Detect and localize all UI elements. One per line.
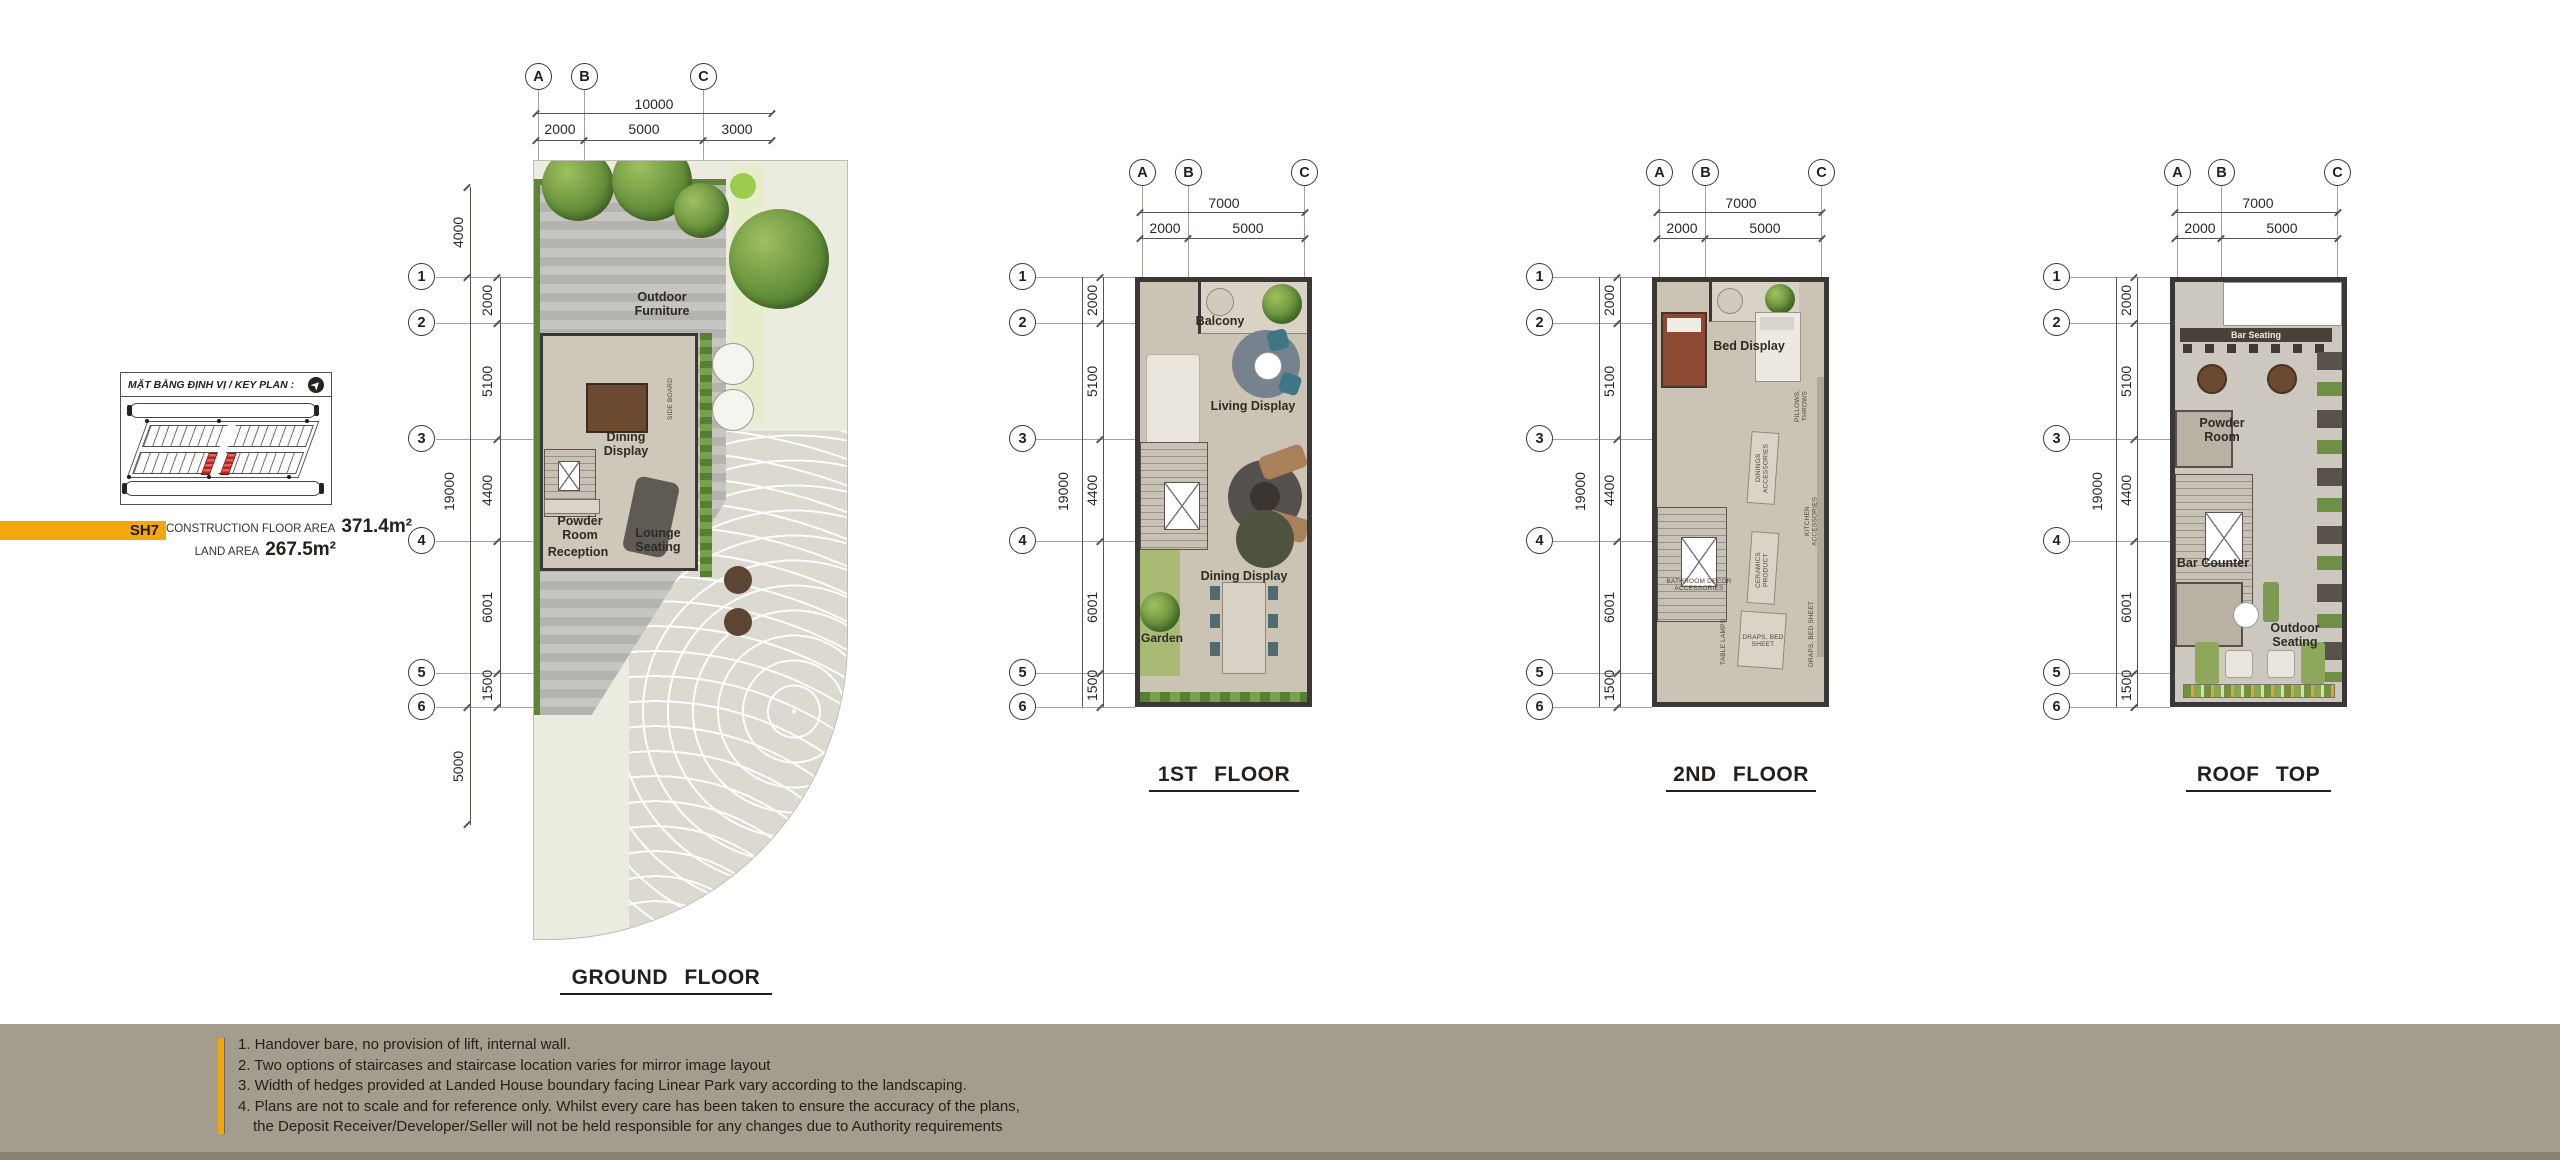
dim-seg: 5000 [615,122,673,136]
grid-bubble-A: A [525,63,552,90]
planter-box [2195,642,2219,684]
dim-total: 7000 [1713,196,1769,210]
grid-line [436,707,533,708]
dim-line [536,140,773,141]
bar-stools-row [2183,344,2329,353]
grid-bubble-3: 3 [408,425,435,452]
dim-line [1599,277,1600,707]
site-corner-dot [305,419,309,423]
grid-line [1553,439,1652,440]
room-label-powder-room: Powder Room [2187,417,2257,445]
first-floor-plan: Balcony Living Display Dining Display Ga… [1135,277,1312,707]
pillow-icon [1667,318,1701,332]
grid-line [584,90,585,162]
compass-icon [308,377,324,393]
dim-total: 19000 [441,450,457,534]
dim-line [2175,212,2339,213]
grid-bubble-4: 4 [408,527,435,554]
chair-row-icon [1268,586,1278,670]
grid-bubble-B: B [2208,159,2235,186]
land-area-label: LAND AREA [195,546,260,558]
dim-total: 10000 [626,97,682,111]
dim-line [1657,238,1823,239]
hedge-strip [700,333,712,577]
grid-bubble-5: 5 [408,659,435,686]
construction-area-value: 371.4m² [341,516,412,537]
dim-tick [768,110,775,117]
round-chair-icon [1717,288,1743,314]
grid-bubble-B: B [1175,159,1202,186]
round-dining-table-icon [1236,510,1294,568]
grid-line [2070,439,2170,440]
footer-bottom-strip [0,1152,2560,1160]
construction-area-line: CONSTRUCTION FLOOR AREA371.4m² [166,516,336,538]
ground-floor-title: GROUND FLOOR [560,966,772,995]
key-plan-title: MẶT BẰNG ĐỊNH VỊ / KEY PLAN : [128,379,308,391]
construction-area-label: CONSTRUCTION FLOOR AREA [166,523,335,535]
dim-seg: 2000 [1084,278,1100,322]
grid-bubble-4: 4 [1009,527,1036,554]
x-table-icon [2267,364,2297,394]
dining-table-icon [1222,582,1266,674]
tree-icon [674,183,729,238]
dim-total: 19000 [1055,450,1071,534]
cafe-table-icon [724,566,752,594]
round-table-icon [1250,482,1280,512]
footer-accent-bar [218,1038,224,1134]
site-corner-dot [127,475,131,479]
grid-bubble-3: 3 [1526,425,1553,452]
label-ceramics-product: CERAMICS PRODUCT [1758,536,1767,604]
dim-seg: 4400 [479,461,495,519]
grid-bubble-2: 2 [1526,309,1553,336]
footer-note-3: 3. Width of hedges provided at Landed Ho… [238,1076,1020,1097]
grid-bubble-1: 1 [408,263,435,290]
dim-line [1140,238,1306,239]
chair-row-icon [1210,586,1220,670]
grid-bubble-4: 4 [1526,527,1553,554]
dim-total: 7000 [2230,196,2286,210]
bar-seating-counter: Bar Seating [2180,328,2332,342]
room-label-sideboard: SIDE BOARD [666,376,675,422]
dim-line [2116,277,2117,707]
road-endcap [122,483,127,494]
dim-seg: 5100 [1601,352,1617,410]
room-label-dining-display: Dining Display [1200,570,1288,584]
room-label-outdoor-furniture: Outdoor Furniture [610,291,714,319]
key-plan-road-bottom [125,481,321,496]
dim-seg: 2000 [2118,278,2134,322]
label-kitchen-accessories: KITCHEN ACCESSORIES [1807,482,1816,560]
grid-bubble-C: C [690,63,717,90]
dim-seg: 2000 [1601,278,1617,322]
flower-planter-strip [2183,684,2335,698]
dim-seg: 5000 [1218,221,1278,235]
dim-total: 19000 [1572,450,1588,534]
footer-note-1: 1. Handover bare, no provision of lift, … [238,1035,1020,1056]
grid-bubble-2: 2 [1009,309,1036,336]
room-label-bed-display: Bed Display [1709,340,1789,354]
floor-plan-sheet: MẶT BẰNG ĐỊNH VỊ / KEY PLAN : [0,0,2560,1160]
site-corner-dot [207,475,211,479]
grid-line [1036,707,1135,708]
room-label-bar-seating: Bar Seating [2231,330,2281,340]
second-floor-title: 2ND FLOOR [1666,763,1816,792]
room-label-balcony: Balcony [1180,315,1260,329]
dim-seg: 3000 [708,122,766,136]
grid-bubble-6: 6 [1009,693,1036,720]
cube-seat-icon [2267,650,2295,678]
grid-bubble-6: 6 [2043,693,2070,720]
reception-desk-icon [544,499,600,514]
footer-note-4-continued: the Deposit Receiver/Developer/Seller wi… [238,1117,1020,1138]
site-corner-dot [145,419,149,423]
tree-icon [1765,284,1795,314]
umbrella-seat-icon [712,389,754,431]
key-plan-map [121,397,331,502]
land-area-line: LAND AREA267.5m² [166,539,336,561]
grid-line [1304,186,1305,277]
grid-bubble-B: B [571,63,598,90]
room-label-reception: Reception [538,546,618,560]
dim-line [1657,212,1823,213]
dim-line [1082,277,1083,707]
x-table-icon [2197,364,2227,394]
grid-bubble-1: 1 [1009,263,1036,290]
dim-seg: 4400 [1601,461,1617,519]
grid-line [2070,323,2170,324]
roof-opening [2223,282,2342,326]
dim-seg: 5000 [2252,221,2312,235]
dim-seg: 4400 [1084,461,1100,519]
roof-top-plan: Bar Seating Powder Room Bar Counter Outd… [2170,277,2347,707]
cafe-table-icon [724,608,752,636]
dim-seg: 5100 [2118,352,2134,410]
grid-line [1036,323,1135,324]
cube-seat-icon [2225,650,2253,678]
dim-seg: 4400 [2118,461,2134,519]
room-label-outdoor-seating: Outdoor Seating [2251,622,2339,650]
unit-areas: CONSTRUCTION FLOOR AREA371.4m² LAND AREA… [166,516,336,561]
dim-seg: 2000 [1141,221,1189,235]
grid-line [703,90,704,162]
footer-note-2: 2. Two options of staircases and stairca… [238,1056,1020,1077]
grid-bubble-C: C [1808,159,1835,186]
grid-line [1036,541,1135,542]
grid-line [1036,439,1135,440]
dim-line [1620,277,1621,707]
sofa-icon [1146,354,1200,456]
grid-bubble-A: A [1646,159,1673,186]
grid-bubble-1: 1 [1526,263,1553,290]
dim-tick [768,137,775,144]
key-plan-box: MẶT BẰNG ĐỊNH VỊ / KEY PLAN : [120,372,332,505]
label-table-lamps: TABLE LAMPS [1719,614,1728,669]
dim-top: 4000 [450,202,466,262]
dim-seg: 1500 [479,664,495,706]
room-label-dining-display: Dining Display [584,431,668,459]
label-draps-bed-sheet: DRAPS, BED SHEET [1739,634,1787,649]
grid-line [2337,186,2338,277]
umbrella-seat-icon [712,343,754,385]
grid-line [436,541,533,542]
footer-note-4: 4. Plans are not to scale and for refere… [238,1097,1020,1118]
dim-seg: 6001 [2118,578,2134,636]
key-plan-road-top [130,403,316,418]
pillow-icon [1760,317,1794,330]
label-pillows-throws: PILLOWS, THROWS [1797,384,1806,428]
footer-band: 1. Handover bare, no provision of lift, … [0,1024,2560,1160]
compass-needle-icon [310,379,321,390]
grid-line [436,439,533,440]
grid-line [1553,541,1652,542]
grid-bubble-6: 6 [1526,693,1553,720]
grid-bubble-1: 1 [2043,263,2070,290]
dim-seg: 2000 [479,278,495,322]
dim-seg: 6001 [1084,578,1100,636]
key-plan-site-outline [127,421,320,478]
lift-shaft [558,461,580,491]
grid-bubble-5: 5 [2043,659,2070,686]
dim-seg: 1500 [2118,664,2134,706]
grid-bubble-4: 4 [2043,527,2070,554]
dim-line [2137,277,2138,707]
tree-icon [729,209,829,309]
grid-line [436,323,533,324]
road-endcap [314,405,319,416]
grid-line [2070,541,2170,542]
road-endcap [319,483,324,494]
dim-line [1140,212,1306,213]
roof-top-title: ROOF TOP [2186,763,2331,792]
planter-box [2263,582,2279,622]
grid-line [1821,186,1822,277]
grid-line [1553,707,1652,708]
room-label-powder-room: Powder Room [545,515,615,543]
label-draps-bed-sheet: DRAPS, BED SHEET [1807,600,1816,668]
tree-icon [1140,592,1180,632]
dim-line [536,113,773,114]
lift-shaft [1164,482,1200,530]
grid-bubble-6: 6 [408,693,435,720]
dining-table-icon [586,383,648,433]
grid-bubble-2: 2 [408,309,435,336]
room-label-garden: Garden [1136,632,1188,645]
road-endcap [127,405,132,416]
dim-seg: 5100 [1084,352,1100,410]
grid-bubble-5: 5 [1009,659,1036,686]
grid-bubble-5: 5 [1526,659,1553,686]
dim-seg: 6001 [479,578,495,636]
dim-seg: 2000 [2176,221,2224,235]
dim-seg: 2000 [536,122,584,136]
tree-icon [1262,284,1302,324]
dim-total: 19000 [2089,450,2105,534]
label-bathroom-decor: BATHROOM DECOR ACCESSORIES [1663,578,1735,593]
grid-line [2070,707,2170,708]
dim-seg: 2000 [1658,221,1706,235]
first-floor-title: 1ST FLOOR [1149,763,1299,792]
grid-line [1553,323,1652,324]
land-area-value: 267.5m² [265,539,336,560]
second-floor-plan: Bed Display PILLOWS, THROWS DININGS ACCE… [1652,277,1829,707]
round-chair-icon [1206,288,1234,316]
room-label-living-display: Living Display [1208,400,1298,414]
dim-line [1103,277,1104,707]
dim-line [470,187,471,825]
dim-bottom: 5000 [450,735,466,797]
grid-bubble-2: 2 [2043,309,2070,336]
room-label-bar-counter: Bar Counter [2175,557,2251,571]
room-label-lounge-seating: Lounge Seating [616,527,700,555]
key-plan-header: MẶT BẰNG ĐỊNH VỊ / KEY PLAN : [121,373,331,397]
dim-line [500,277,501,707]
planter-strip [1140,692,1307,702]
dim-seg: 1500 [1601,664,1617,706]
lawn-shrub-icon [730,173,756,199]
dim-seg: 5000 [1735,221,1795,235]
grid-bubble-C: C [2324,159,2351,186]
unit-code: SH7 [130,522,159,539]
grid-bubble-3: 3 [1009,425,1036,452]
unit-code-badge: SH7 [0,521,166,540]
footer-notes: 1. Handover bare, no provision of lift, … [238,1035,1020,1138]
site-corner-dot [217,419,221,423]
coffee-table-icon [1254,352,1282,380]
dim-total: 7000 [1196,196,1252,210]
dim-seg: 1500 [1084,664,1100,706]
grid-bubble-3: 3 [2043,425,2070,452]
grid-bubble-B: B [1692,159,1719,186]
label-dinings-accessories: DININGS ACCESSORIES [1758,434,1767,502]
site-corner-dot [287,475,291,479]
dim-line [2175,238,2339,239]
grid-bubble-C: C [1291,159,1318,186]
dim-seg: 5100 [479,352,495,410]
grid-bubble-A: A [2164,159,2191,186]
grid-bubble-A: A [1129,159,1156,186]
bed-icon [1661,312,1707,388]
dim-seg: 6001 [1601,578,1617,636]
